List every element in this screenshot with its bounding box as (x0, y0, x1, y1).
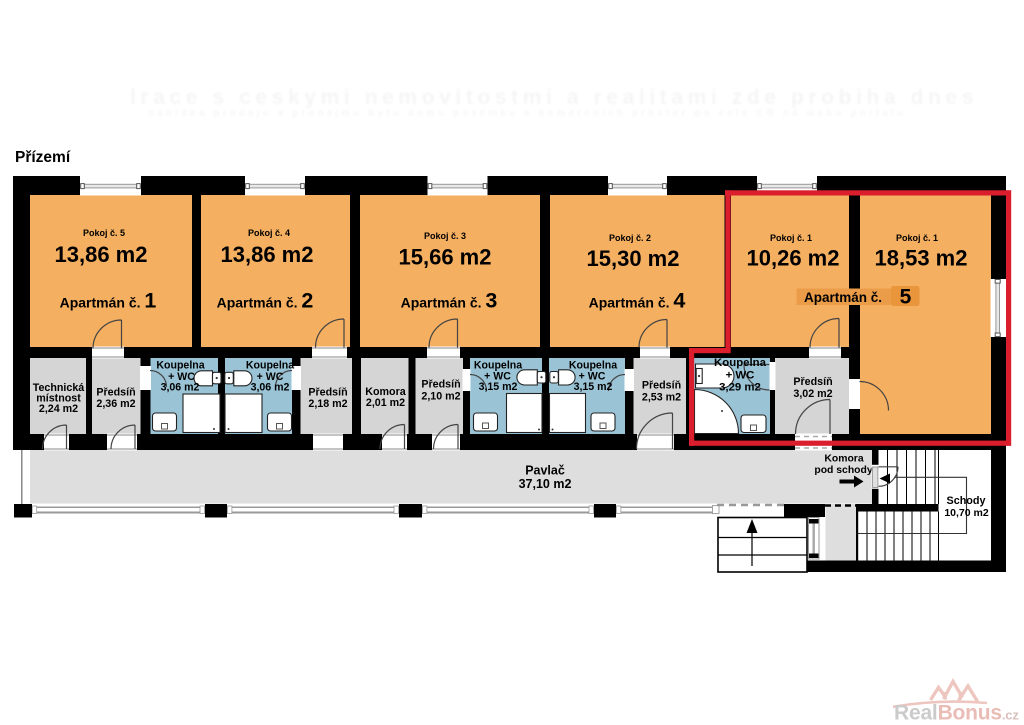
svg-text:Předsíň: Předsíň (642, 380, 681, 392)
svg-text:Schody: Schody (947, 495, 986, 507)
svg-text:13,86 m2: 13,86 m2 (55, 242, 148, 267)
svg-text:2,53 m2: 2,53 m2 (642, 392, 681, 404)
svg-text:Koupelna: Koupelna (714, 357, 767, 369)
svg-text:+ WC: + WC (726, 370, 755, 382)
svg-text:3,29 m2: 3,29 m2 (719, 382, 761, 394)
svg-text:Přízemí: Přízemí (15, 149, 71, 166)
svg-text:10,26 m2: 10,26 m2 (747, 246, 840, 271)
svg-text:13,86 m2: 13,86 m2 (221, 242, 314, 267)
svg-text:nabidka prodeju a pronajmu byt: nabidka prodeju a pronajmu bytu domu poz… (148, 108, 906, 119)
svg-text:15,30 m2: 15,30 m2 (587, 246, 680, 271)
svg-text:5: 5 (900, 286, 912, 309)
svg-text:Pokoj č. 2: Pokoj č. 2 (609, 233, 651, 243)
svg-text:Koupelna: Koupelna (156, 360, 204, 372)
svg-text:3,06 m2: 3,06 m2 (251, 382, 290, 394)
svg-text:Předsíň: Předsíň (421, 379, 460, 391)
svg-text:Předsíň: Předsíň (793, 376, 832, 388)
svg-text:Apartmán č.: Apartmán č. (804, 290, 882, 305)
svg-text:3,06 m2: 3,06 m2 (161, 382, 200, 394)
svg-text:2,10 m2: 2,10 m2 (421, 391, 460, 403)
svg-text:Pokoj č. 1: Pokoj č. 1 (896, 233, 938, 243)
svg-text:pod schody: pod schody (814, 465, 873, 476)
svg-text:3,15 m2: 3,15 m2 (574, 381, 613, 393)
svg-text:Předsíň: Předsíň (308, 387, 347, 399)
svg-text:3,15 m2: 3,15 m2 (479, 381, 518, 393)
svg-text:Pokoj č. 1: Pokoj č. 1 (770, 233, 812, 243)
svg-text:Komora: Komora (824, 453, 863, 464)
svg-text:Pokoj č. 5: Pokoj č. 5 (83, 228, 125, 238)
svg-text:37,10 m2: 37,10 m2 (519, 477, 572, 491)
svg-text:lrace s ceskymi nemovitostmi a: lrace s ceskymi nemovitostmi a realitami… (130, 86, 978, 109)
svg-text:Koupelna: Koupelna (246, 360, 294, 372)
svg-text:10,70 m2: 10,70 m2 (944, 507, 989, 519)
svg-text:Pavlač: Pavlač (525, 464, 565, 478)
svg-text:18,53 m2: 18,53 m2 (875, 246, 968, 271)
svg-text:3,02 m2: 3,02 m2 (793, 388, 832, 400)
svg-text:15,66 m2: 15,66 m2 (399, 245, 492, 270)
svg-text:2,01 m2: 2,01 m2 (366, 397, 405, 409)
svg-text:2,18 m2: 2,18 m2 (308, 398, 347, 410)
svg-text:2,36 m2: 2,36 m2 (96, 398, 135, 410)
svg-text:Předsíň: Předsíň (96, 387, 135, 399)
svg-text:RealBonus.cz: RealBonus.cz (894, 702, 1019, 725)
svg-text:2,24 m2: 2,24 m2 (39, 403, 78, 415)
svg-text:Pokoj č. 3: Pokoj č. 3 (424, 231, 466, 241)
svg-text:Pokoj č. 4: Pokoj č. 4 (248, 228, 290, 238)
